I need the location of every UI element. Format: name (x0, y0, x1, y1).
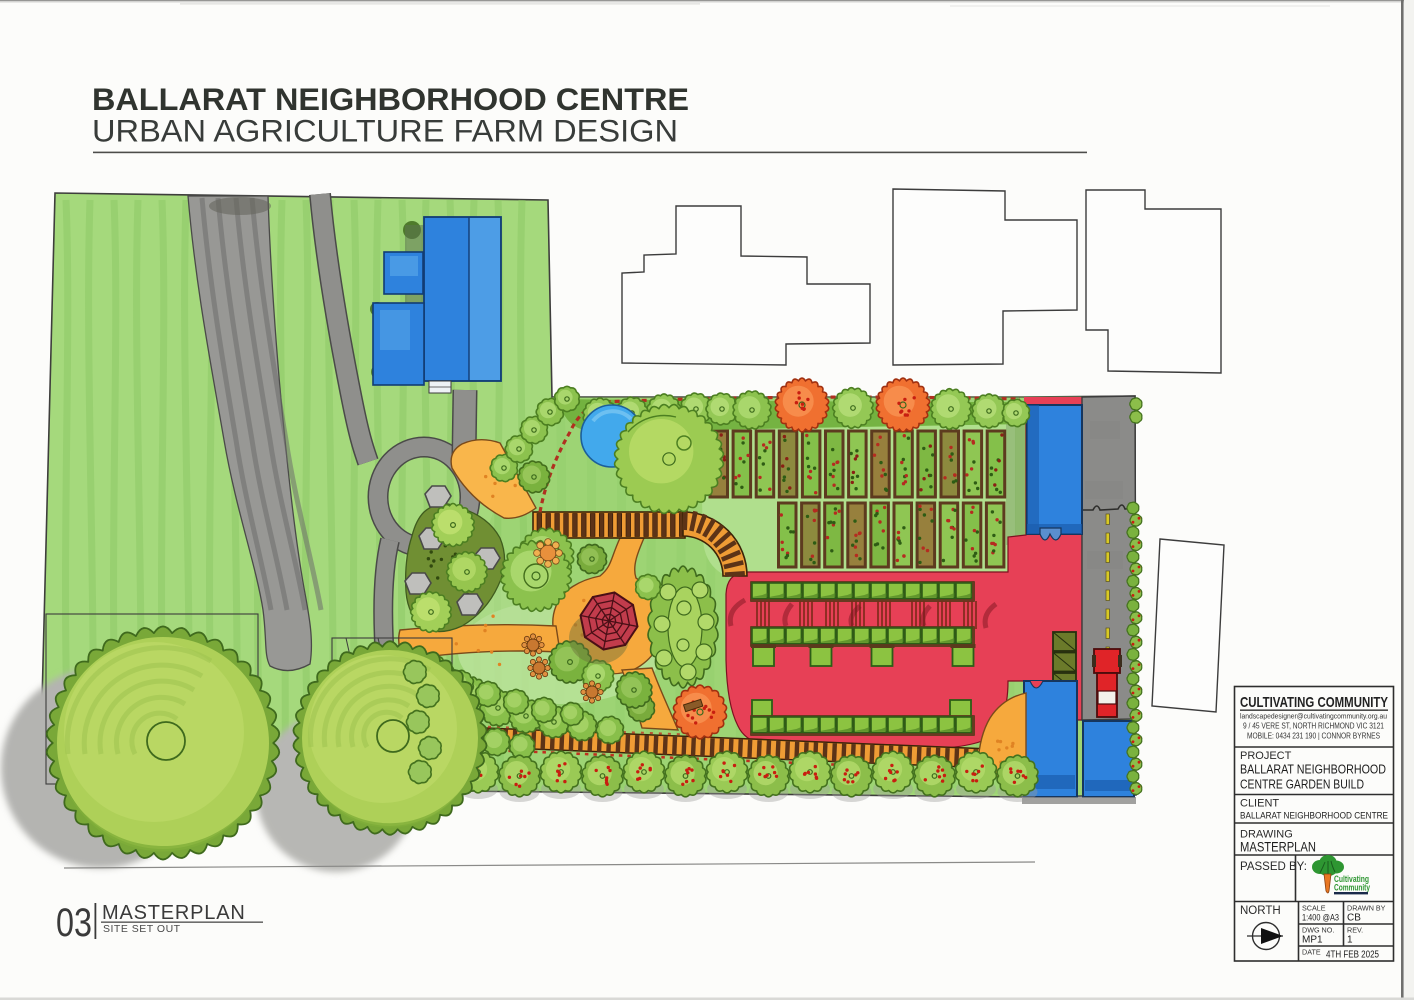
svg-text:URBAN AGRICULTURE FARM DESIGN: URBAN AGRICULTURE FARM DESIGN (92, 113, 678, 149)
svg-text:PASSED BY:: PASSED BY: (1240, 861, 1307, 873)
svg-text:9 / 45 VERE ST, NORTH RICHMOND: 9 / 45 VERE ST, NORTH RICHMOND VIC 3121 (1243, 721, 1384, 731)
svg-text:Community: Community (1334, 883, 1370, 893)
svg-text:NORTH: NORTH (1240, 905, 1281, 917)
svg-text:CLIENT: CLIENT (1240, 798, 1279, 810)
svg-text:BALLARAT NEIGHBORHOOD CENTRE: BALLARAT NEIGHBORHOOD CENTRE (1240, 811, 1388, 821)
svg-text:DWG NO.: DWG NO. (1302, 926, 1334, 935)
svg-text:REV.: REV. (1347, 926, 1363, 935)
svg-text:PROJECT: PROJECT (1240, 750, 1292, 762)
svg-text:1: 1 (1347, 935, 1353, 946)
svg-text:BALLARAT NEIGHBORHOOD: BALLARAT NEIGHBORHOOD (1240, 762, 1386, 777)
svg-text:MASTERPLAN: MASTERPLAN (1240, 840, 1316, 855)
svg-text:MASTERPLAN: MASTERPLAN (102, 902, 246, 924)
svg-text:MOBILE: 0434 231 190 | CONNOR: MOBILE: 0434 231 190 | CONNOR BYRNES (1247, 731, 1380, 741)
svg-text:CULTIVATING COMMUNITY: CULTIVATING COMMUNITY (1240, 694, 1388, 711)
svg-text:03: 03 (56, 901, 92, 945)
svg-text:CENTRE GARDEN BUILD: CENTRE GARDEN BUILD (1240, 777, 1364, 792)
svg-text:1:400 @A3: 1:400 @A3 (1302, 913, 1339, 924)
svg-text:SCALE: SCALE (1302, 904, 1326, 913)
svg-text:DRAWN BY: DRAWN BY (1347, 904, 1386, 913)
svg-text:DATE: DATE (1302, 948, 1321, 957)
svg-text:landscapedesigner@cultivatingc: landscapedesigner@cultivatingcommunity.o… (1240, 712, 1387, 721)
svg-text:4TH FEB 2025: 4TH FEB 2025 (1326, 950, 1379, 961)
svg-text:MP1: MP1 (1302, 935, 1323, 946)
svg-text:CB: CB (1347, 913, 1361, 924)
svg-text:SITE SET OUT: SITE SET OUT (103, 923, 181, 935)
